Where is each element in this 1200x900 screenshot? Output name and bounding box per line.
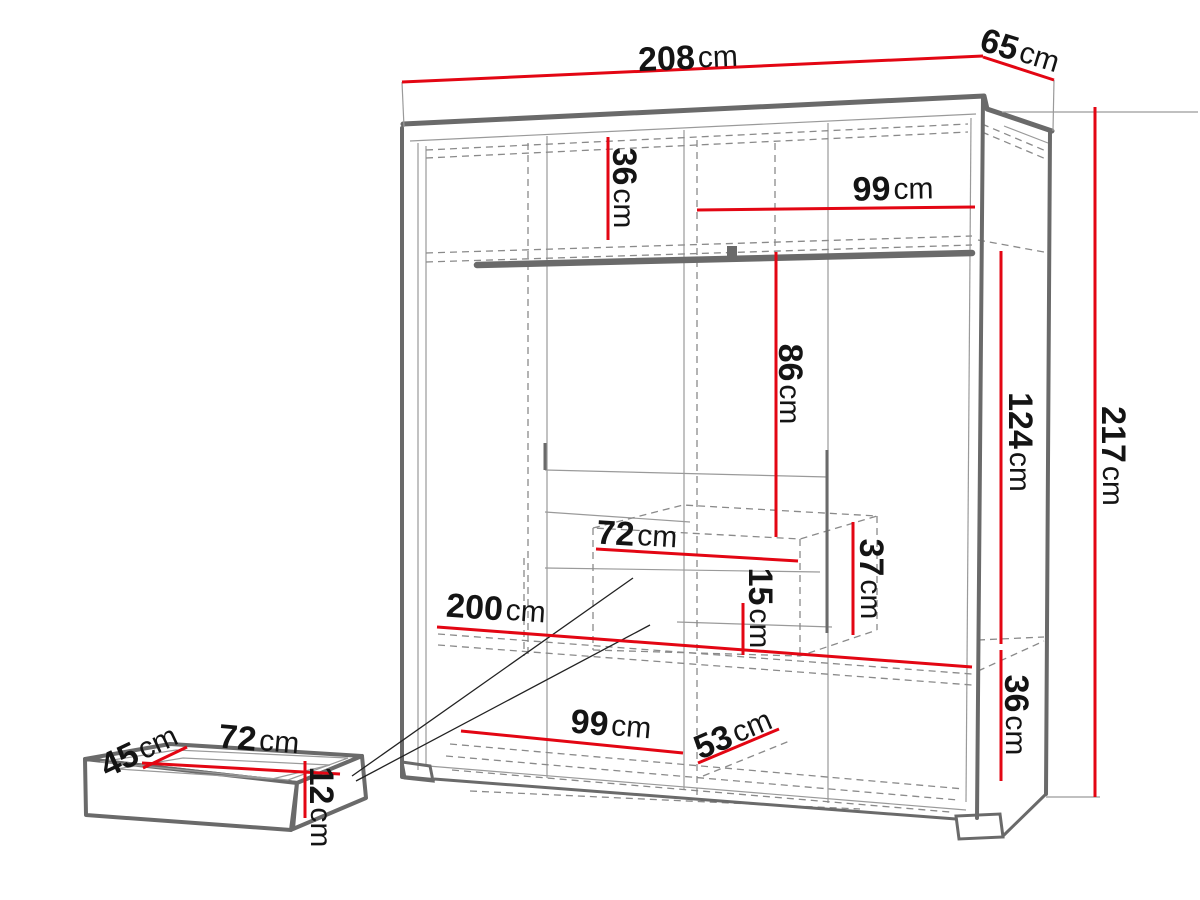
ext-depth-right bbox=[1053, 80, 1054, 131]
side-shelf-dash bbox=[978, 240, 1044, 252]
diagram-stage: 208cm 65cm 217cm 124cm 36cm 99cm 86cm 72… bbox=[0, 0, 1200, 900]
dim-label-right-mid-height: 124cm bbox=[1001, 392, 1039, 492]
niche-top-seam bbox=[545, 470, 828, 477]
bottom-shelf-dash-2 bbox=[438, 645, 972, 685]
right-back-edge bbox=[1046, 131, 1050, 794]
wardrobe-hidden-lines bbox=[426, 124, 1046, 812]
dim-label-hanging-height: 86cm bbox=[771, 344, 809, 425]
dim-line-top-shelf-width bbox=[697, 207, 975, 210]
dim-label-bottom-shelf-height: 36cm bbox=[997, 675, 1035, 756]
dim-label-total-depth: 65cm bbox=[976, 21, 1064, 81]
dim-label-total-height: 217cm bbox=[1094, 406, 1132, 506]
dim-label-pullout-width: 72cm bbox=[217, 718, 301, 763]
bottom-shelf-side-dash-1 bbox=[978, 637, 1044, 640]
bottom-shelf-dash-1 bbox=[438, 634, 972, 674]
wardrobe-interior-lines bbox=[410, 114, 1048, 810]
dim-label-top-shelf-height: 36cm bbox=[605, 148, 643, 229]
right-inner-wall bbox=[966, 118, 971, 802]
bottom-shelf-side-dash-2 bbox=[978, 641, 1044, 671]
dim-label-pullout-height: 12cm bbox=[302, 767, 340, 848]
dim-label-bottom-right-depth: 53cm bbox=[688, 701, 777, 768]
right-foot bbox=[956, 814, 1003, 839]
dim-label-drawer-unit-inner-height: 15cm bbox=[741, 568, 779, 649]
rail-bracket bbox=[727, 246, 737, 256]
drawer-unit-top-face bbox=[593, 505, 877, 539]
dim-label-total-width: 208cm bbox=[637, 37, 738, 79]
extension-lines bbox=[402, 80, 1198, 797]
dim-label-drawer-unit-width: 72cm bbox=[596, 514, 679, 557]
top-shelf-dash-1 bbox=[426, 236, 972, 253]
floor-dash-3 bbox=[452, 770, 950, 812]
dim-label-top-shelf-width: 99cm bbox=[852, 169, 933, 208]
dim-label-drawer-unit-height: 37cm bbox=[852, 539, 890, 620]
wardrobe-dimension-diagram: 208cm 65cm 217cm 124cm 36cm 99cm 86cm 72… bbox=[0, 0, 1200, 900]
bottom-front-edge bbox=[434, 779, 956, 819]
ext-width-left bbox=[402, 82, 404, 127]
side-bottom-edge bbox=[1003, 794, 1046, 836]
dim-label-interior-width: 200cm bbox=[445, 587, 547, 632]
dim-label-bottom-left-width: 99cm bbox=[569, 703, 653, 748]
side-top-dash-2 bbox=[982, 132, 1046, 159]
dim-line-interior-width bbox=[437, 627, 972, 667]
hanging-rail-bar bbox=[477, 253, 972, 265]
right-front-edge bbox=[977, 98, 983, 818]
